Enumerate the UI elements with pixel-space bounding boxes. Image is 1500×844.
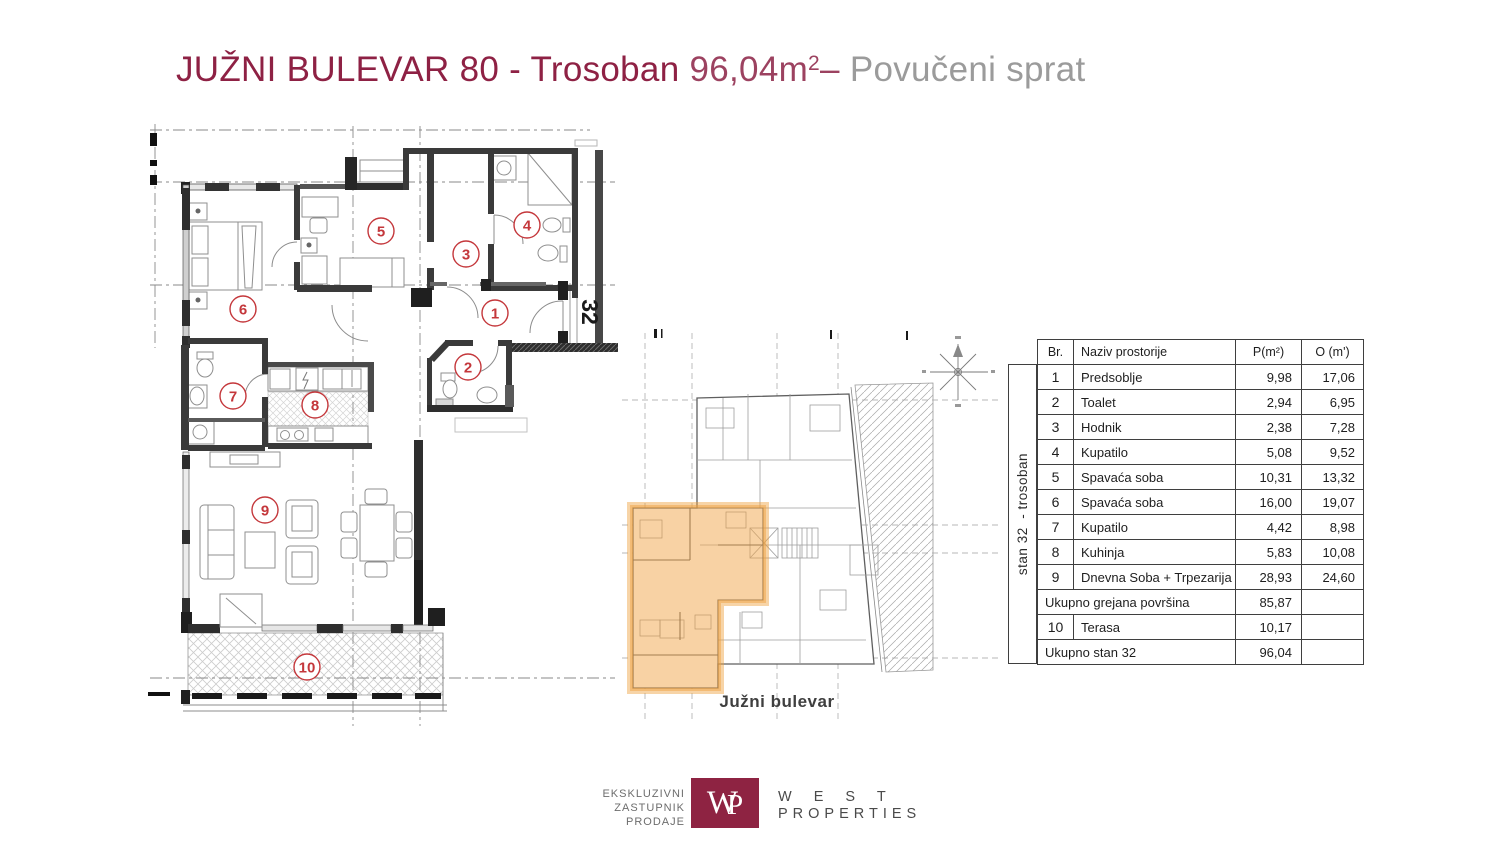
living-furniture bbox=[200, 452, 412, 584]
row-perimeter: 19,07 bbox=[1302, 490, 1364, 515]
table-row: Ukupno stan 3296,04 bbox=[1038, 640, 1364, 665]
row-name: Hodnik bbox=[1074, 415, 1236, 440]
svg-text:9: 9 bbox=[261, 503, 269, 520]
room-number-1: 1 bbox=[482, 300, 508, 326]
room-number-5: 5 bbox=[368, 218, 394, 244]
room-number-6: 6 bbox=[230, 296, 256, 322]
fixtures-room4 bbox=[492, 153, 572, 262]
header-naziv: Naziv prostorije bbox=[1074, 340, 1236, 365]
fixtures-room7 bbox=[187, 352, 214, 444]
floor-plan: 1 2 3 4 5 6 7 8 9 10 32 bbox=[148, 120, 618, 735]
title-dash: – bbox=[820, 50, 850, 89]
svg-text:8: 8 bbox=[311, 398, 319, 415]
row-area: 85,87 bbox=[1236, 590, 1302, 615]
row-number: 8 bbox=[1038, 540, 1074, 565]
row-area: 96,04 bbox=[1236, 640, 1302, 665]
west-properties-logo: W P bbox=[691, 778, 759, 828]
table-row: 1Predsoblje9,9817,06 bbox=[1038, 365, 1364, 390]
row-perimeter: 8,98 bbox=[1302, 515, 1364, 540]
row-number: 7 bbox=[1038, 515, 1074, 540]
room-number-4: 4 bbox=[514, 212, 540, 238]
row-number: 2 bbox=[1038, 390, 1074, 415]
svg-text:1: 1 bbox=[491, 306, 499, 323]
header-p: P(m²) bbox=[1236, 340, 1302, 365]
tagline-line: PRODAJE bbox=[545, 815, 685, 829]
table-row: 5Spavaća soba10,3113,32 bbox=[1038, 465, 1364, 490]
row-label: Ukupno stan 32 bbox=[1038, 640, 1236, 665]
row-perimeter bbox=[1302, 590, 1364, 615]
table-row: 3Hodnik2,387,28 bbox=[1038, 415, 1364, 440]
table-row: Ukupno grejana površina85,87 bbox=[1038, 590, 1364, 615]
row-perimeter: 17,06 bbox=[1302, 365, 1364, 390]
row-name: Kupatilo bbox=[1074, 440, 1236, 465]
table-vertical-label: stan 32 - trosoban bbox=[1008, 364, 1037, 664]
room-number-7: 7 bbox=[220, 383, 246, 409]
row-label: Ukupno grejana površina bbox=[1038, 590, 1236, 615]
row-area: 28,93 bbox=[1236, 565, 1302, 590]
page-title: JUŽNI BULEVAR 80 - Trosoban 96,04m2– Pov… bbox=[176, 50, 1086, 90]
row-name: Spavaća soba bbox=[1074, 465, 1236, 490]
table-header-row: Br.Naziv prostorijeP(m²)O (m') bbox=[1038, 340, 1364, 365]
row-number: 4 bbox=[1038, 440, 1074, 465]
brand-word-properties: PROPERTIES bbox=[778, 806, 921, 823]
bed-room6 bbox=[189, 203, 262, 309]
svg-text:7: 7 bbox=[229, 389, 237, 406]
table-row: 10Terasa10,17 bbox=[1038, 615, 1364, 640]
row-perimeter: 6,95 bbox=[1302, 390, 1364, 415]
svg-text:3: 3 bbox=[462, 247, 470, 264]
room-table: stan 32 - trosoban Br.Naziv prostorijeP(… bbox=[1008, 339, 1364, 666]
row-area: 5,83 bbox=[1236, 540, 1302, 565]
table-row: 6Spavaća soba16,0019,07 bbox=[1038, 490, 1364, 515]
svg-text:5: 5 bbox=[377, 224, 385, 241]
room-number-3: 3 bbox=[453, 241, 479, 267]
row-area: 10,17 bbox=[1236, 615, 1302, 640]
row-number: 3 bbox=[1038, 415, 1074, 440]
title-floor: Povučeni sprat bbox=[850, 50, 1086, 89]
logo-monogram-p: P bbox=[727, 791, 743, 820]
row-perimeter: 10,08 bbox=[1302, 540, 1364, 565]
table-row: 2Toalet2,946,95 bbox=[1038, 390, 1364, 415]
row-name: Terasa bbox=[1074, 615, 1236, 640]
row-number: 6 bbox=[1038, 490, 1074, 515]
table-grid: Br.Naziv prostorijeP(m²)O (m')1Predsoblj… bbox=[1037, 339, 1364, 665]
row-perimeter: 7,28 bbox=[1302, 415, 1364, 440]
tagline-line: ZASTUPNIK bbox=[545, 801, 685, 815]
footer-tagline: EKSKLUZIVNI ZASTUPNIK PRODAJE bbox=[545, 787, 685, 829]
header-o: O (m') bbox=[1302, 340, 1364, 365]
room-number-9: 9 bbox=[252, 497, 278, 523]
brochure-page: JUŽNI BULEVAR 80 - Trosoban 96,04m2– Pov… bbox=[0, 0, 1500, 844]
row-perimeter: 24,60 bbox=[1302, 565, 1364, 590]
row-area: 9,98 bbox=[1236, 365, 1302, 390]
title-project: JUŽNI BULEVAR 80 - Trosoban bbox=[176, 50, 690, 89]
row-name: Predsoblje bbox=[1074, 365, 1236, 390]
table-row: 4Kupatilo5,089,52 bbox=[1038, 440, 1364, 465]
svg-text:10: 10 bbox=[299, 660, 316, 677]
row-name: Kuhinja bbox=[1074, 540, 1236, 565]
street-label: Južni bulevar bbox=[719, 692, 834, 711]
row-perimeter: 13,32 bbox=[1302, 465, 1364, 490]
row-name: Toalet bbox=[1074, 390, 1236, 415]
row-area: 4,42 bbox=[1236, 515, 1302, 540]
row-name: Kupatilo bbox=[1074, 515, 1236, 540]
row-perimeter bbox=[1302, 615, 1364, 640]
row-perimeter: 9,52 bbox=[1302, 440, 1364, 465]
unit-number-label: 32 bbox=[577, 299, 603, 325]
title-area-sup: 2 bbox=[808, 52, 820, 75]
room-number-10: 10 bbox=[294, 654, 320, 680]
brand-name: W E S T PROPERTIES bbox=[778, 789, 921, 823]
row-area: 16,00 bbox=[1236, 490, 1302, 515]
table-row: 7Kupatilo4,428,98 bbox=[1038, 515, 1364, 540]
svg-text:6: 6 bbox=[239, 302, 247, 319]
row-area: 10,31 bbox=[1236, 465, 1302, 490]
row-area: 2,38 bbox=[1236, 415, 1302, 440]
row-number: 10 bbox=[1038, 615, 1074, 640]
row-number: 9 bbox=[1038, 565, 1074, 590]
room-number-2: 2 bbox=[455, 354, 481, 380]
table-row: 9Dnevna Soba + Trpezarija28,9324,60 bbox=[1038, 565, 1364, 590]
row-perimeter bbox=[1302, 640, 1364, 665]
tagline-line: EKSKLUZIVNI bbox=[545, 787, 685, 801]
svg-text:4: 4 bbox=[523, 218, 532, 235]
svg-text:2: 2 bbox=[464, 360, 472, 377]
row-number: 5 bbox=[1038, 465, 1074, 490]
brand-word-west: W E S T bbox=[778, 789, 921, 806]
header-br: Br. bbox=[1038, 340, 1074, 365]
room-number-8: 8 bbox=[302, 392, 328, 418]
boundary-dashes bbox=[148, 133, 170, 696]
row-area: 2,94 bbox=[1236, 390, 1302, 415]
title-area: 96,04m bbox=[690, 50, 809, 89]
furniture bbox=[187, 140, 597, 584]
row-area: 5,08 bbox=[1236, 440, 1302, 465]
site-plan: Južni bulevar bbox=[620, 325, 1005, 730]
row-name: Dnevna Soba + Trpezarija bbox=[1074, 565, 1236, 590]
row-number: 1 bbox=[1038, 365, 1074, 390]
row-name: Spavaća soba bbox=[1074, 490, 1236, 515]
table-row: 8Kuhinja5,8310,08 bbox=[1038, 540, 1364, 565]
